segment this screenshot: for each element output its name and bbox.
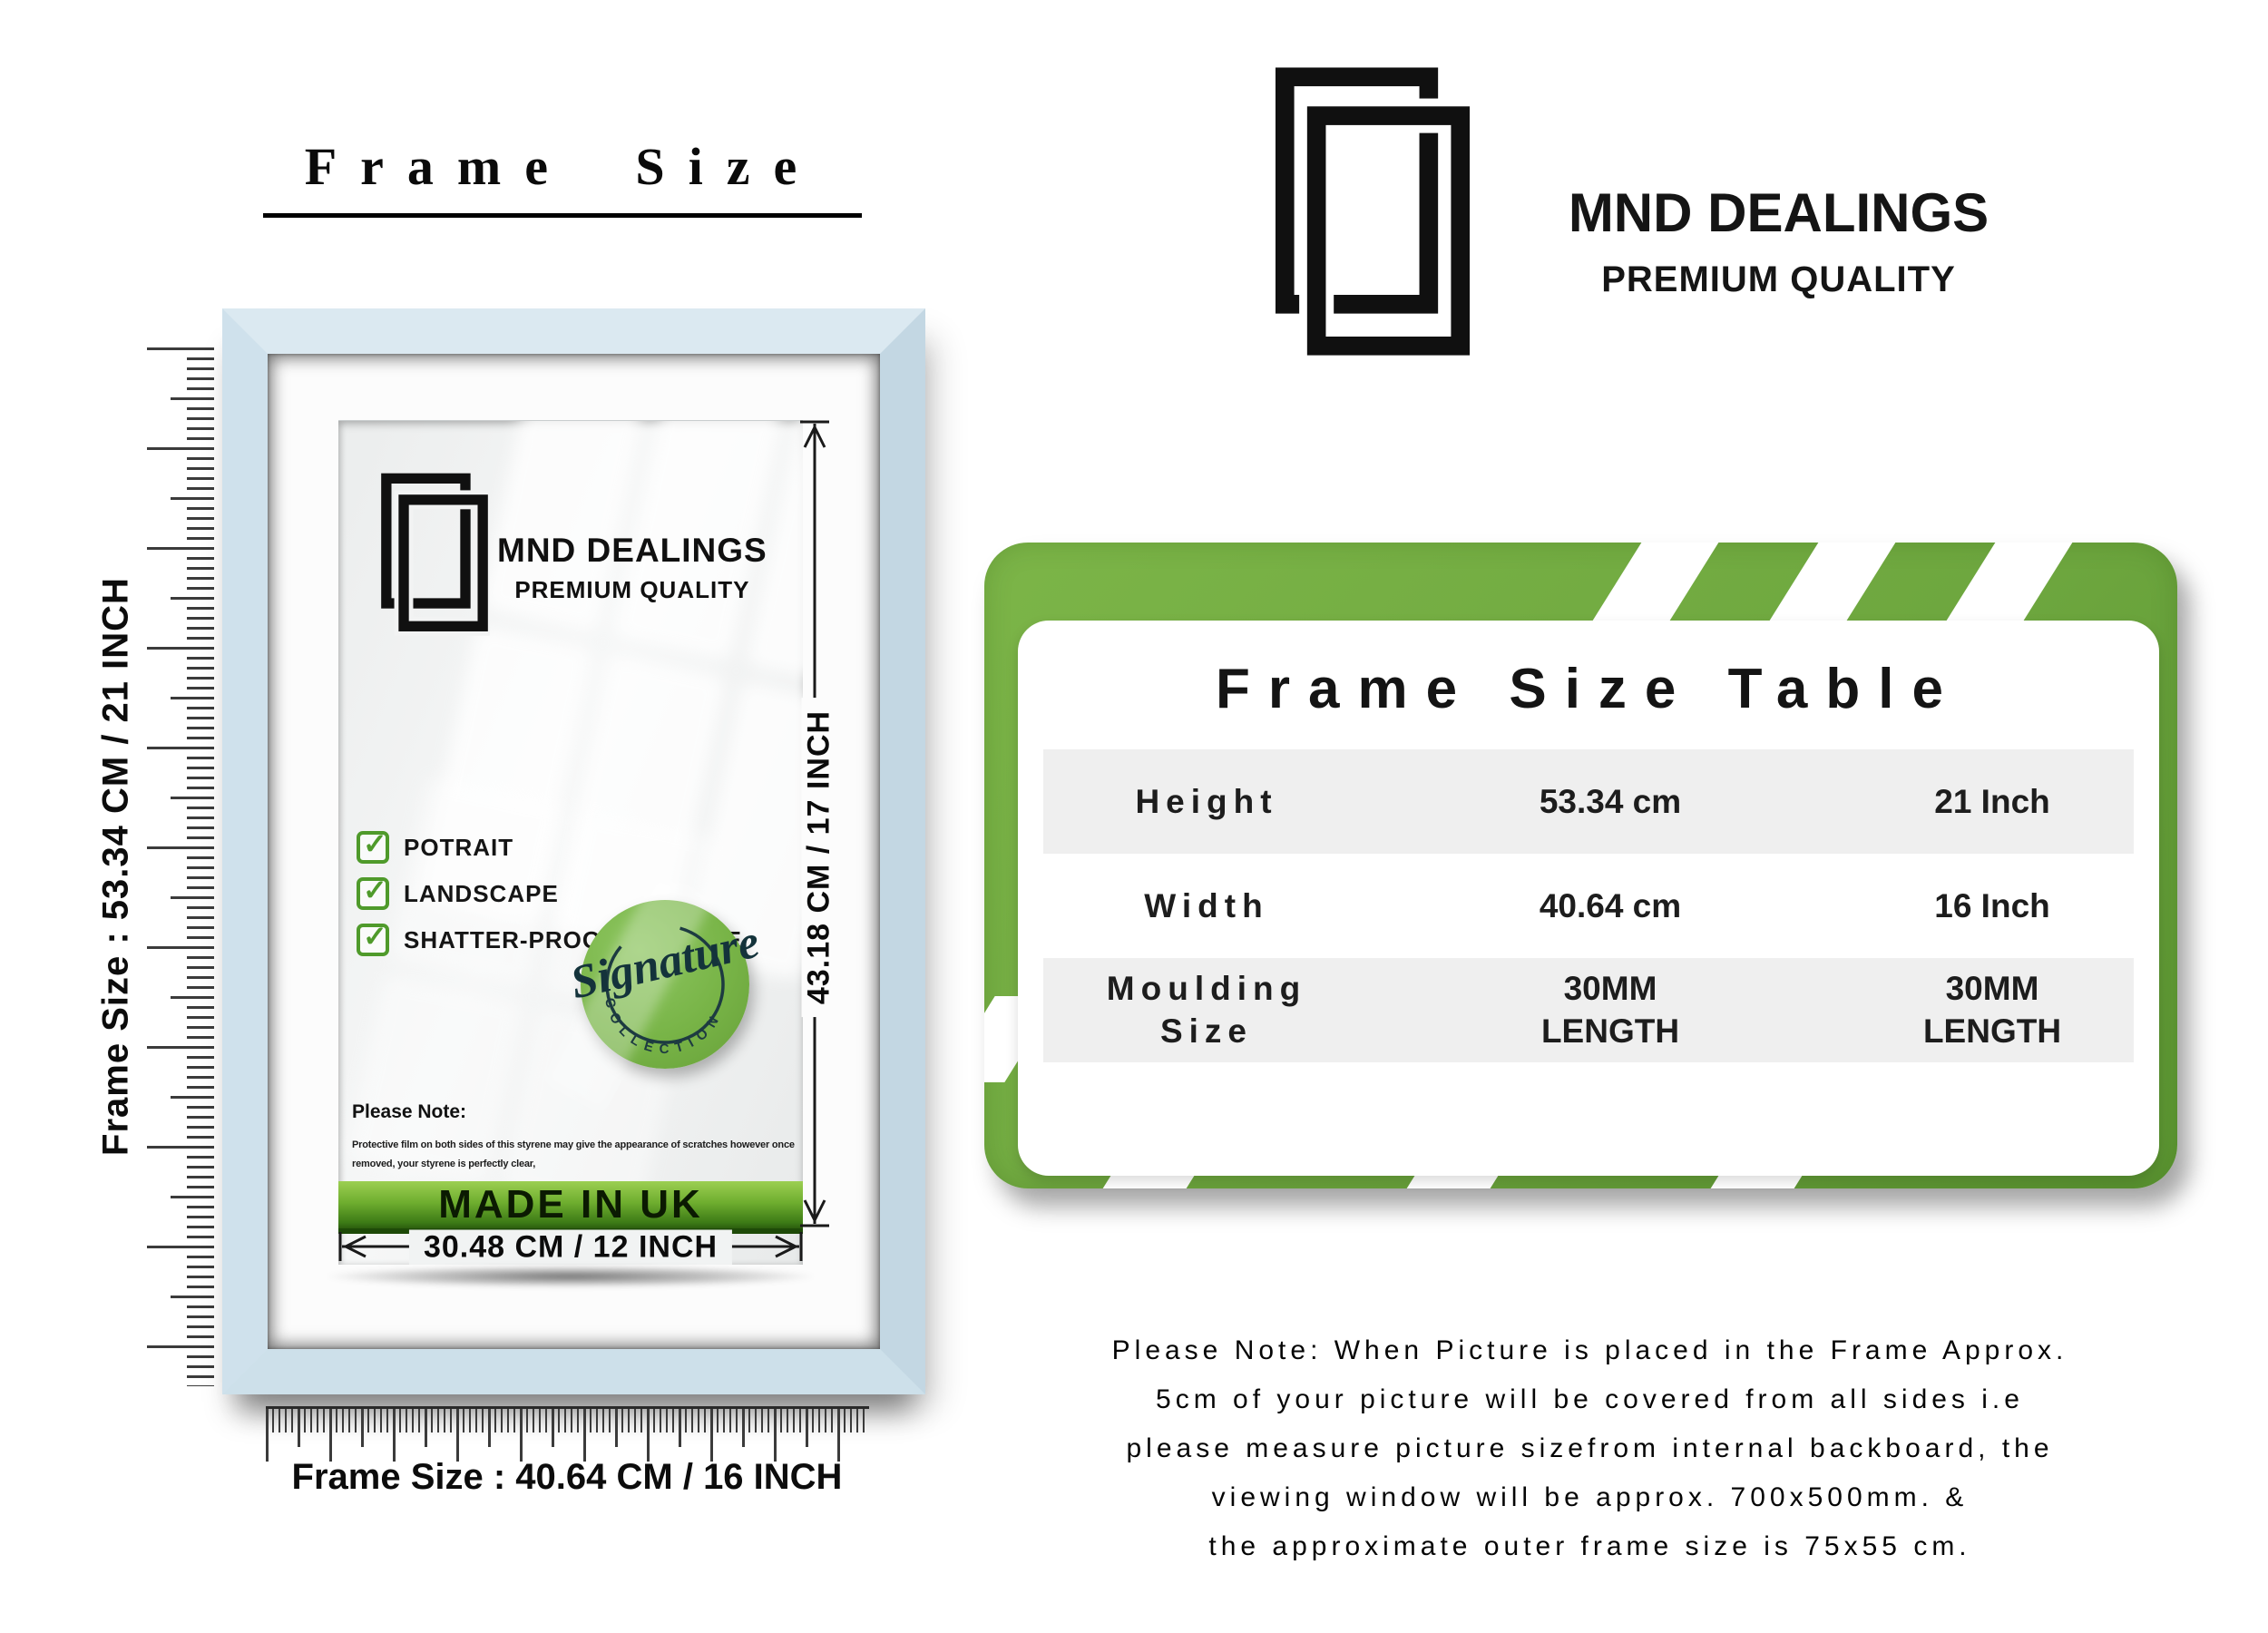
picture-frame: MND DEALINGS PREMIUM QUALITY ✓ POTRAIT ✓… — [222, 308, 925, 1394]
row-label: Height — [1043, 783, 1370, 821]
check-icon: ✓ — [357, 831, 389, 864]
frame-note-line: removed, your styrene is perfectly clear… — [352, 1155, 797, 1174]
vertical-ruler-label: Frame Size : 53.34 CM / 21 INCH — [96, 577, 137, 1156]
frame-note-body: Protective film on both sides of this st… — [352, 1136, 797, 1174]
note-line: the approximate outer frame size is 75x5… — [984, 1522, 2195, 1571]
row-inch-value: 16 Inch — [1851, 887, 2134, 925]
brand-tagline: PREMIUM QUALITY — [1531, 259, 2026, 300]
frame-size-table: Height 53.34 cm 21 Inch Width 40.64 cm 1… — [1043, 749, 2134, 1062]
frame-size-poster: Frame Size Frame Size : 53.34 CM / 21 IN… — [0, 0, 2268, 1633]
brand-name: MND DEALINGS — [1531, 181, 2026, 244]
made-in-uk-label: MADE IN UK — [438, 1182, 703, 1227]
note-line: viewing window will be approx. 700x500mm… — [984, 1473, 2195, 1522]
row-label: Moulding Size — [1043, 968, 1370, 1052]
made-in-uk-banner: MADE IN UK — [338, 1181, 803, 1234]
row-cm-value: 40.64 cm — [1370, 887, 1851, 925]
check-icon: ✓ — [357, 877, 389, 910]
feature-label: POTRAIT — [404, 834, 513, 862]
horizontal-ruler — [266, 1406, 869, 1462]
frame-size-table-card: Frame Size Table Height 53.34 cm 21 Inch… — [1018, 621, 2159, 1176]
check-icon: ✓ — [357, 924, 389, 956]
signature-collection-badge: C O L L E C T I O N Signature — [581, 900, 749, 1069]
note-line: Please Note: When Picture is placed in t… — [984, 1326, 2195, 1375]
brand-frames-icon — [379, 471, 490, 638]
frame-note-title: Please Note: — [352, 1101, 466, 1123]
height-dimension-label: 43.18 CM / 17 INCH — [802, 698, 837, 1017]
glass-bottom-shadow — [327, 1266, 814, 1287]
frame-note-line: Protective film on both sides of this st… — [352, 1136, 797, 1155]
svg-text:C O L L E C T I O N: C O L L E C T I O N — [601, 997, 723, 1057]
table-row: Moulding Size 30MM LENGTH 30MM LENGTH — [1043, 958, 2134, 1062]
table-row: Width 40.64 cm 16 Inch — [1043, 854, 2134, 958]
row-label: Width — [1043, 887, 1370, 925]
row-cm-value: 30MM LENGTH — [1370, 968, 1851, 1052]
row-cm-value: 53.34 cm — [1370, 783, 1851, 821]
frame-mat: MND DEALINGS PREMIUM QUALITY ✓ POTRAIT ✓… — [268, 354, 880, 1349]
brand-frames-icon — [1272, 53, 1473, 377]
note-line: please measure picture sizefrom internal… — [984, 1424, 2195, 1473]
brand-lockup: MND DEALINGS PREMIUM QUALITY — [497, 532, 767, 604]
row-inch-value: 21 Inch — [1851, 783, 2134, 821]
page-title: Frame Size — [263, 136, 862, 218]
brand-name: MND DEALINGS — [497, 532, 767, 570]
note-line: 5cm of your picture will be covered from… — [984, 1375, 2195, 1424]
vertical-ruler — [147, 347, 214, 1386]
width-dimension-label: 30.48 CM / 12 INCH — [409, 1230, 732, 1266]
ruler-ticks-large — [266, 1409, 869, 1462]
horizontal-ruler-label: Frame Size : 40.64 CM / 16 INCH — [222, 1457, 912, 1498]
table-row: Height 53.34 cm 21 Inch — [1043, 749, 2134, 854]
ruler-ticks-large — [147, 347, 214, 1386]
feature-label: LANDSCAPE — [404, 880, 559, 908]
feature-item: ✓ POTRAIT — [357, 831, 742, 864]
brand-tagline: PREMIUM QUALITY — [497, 576, 767, 604]
placement-note: Please Note: When Picture is placed in t… — [984, 1326, 2195, 1571]
row-inch-value: 30MM LENGTH — [1851, 968, 2134, 1052]
frame-glass: MND DEALINGS PREMIUM QUALITY ✓ POTRAIT ✓… — [338, 420, 803, 1265]
table-title: Frame Size Table — [1018, 657, 2159, 721]
